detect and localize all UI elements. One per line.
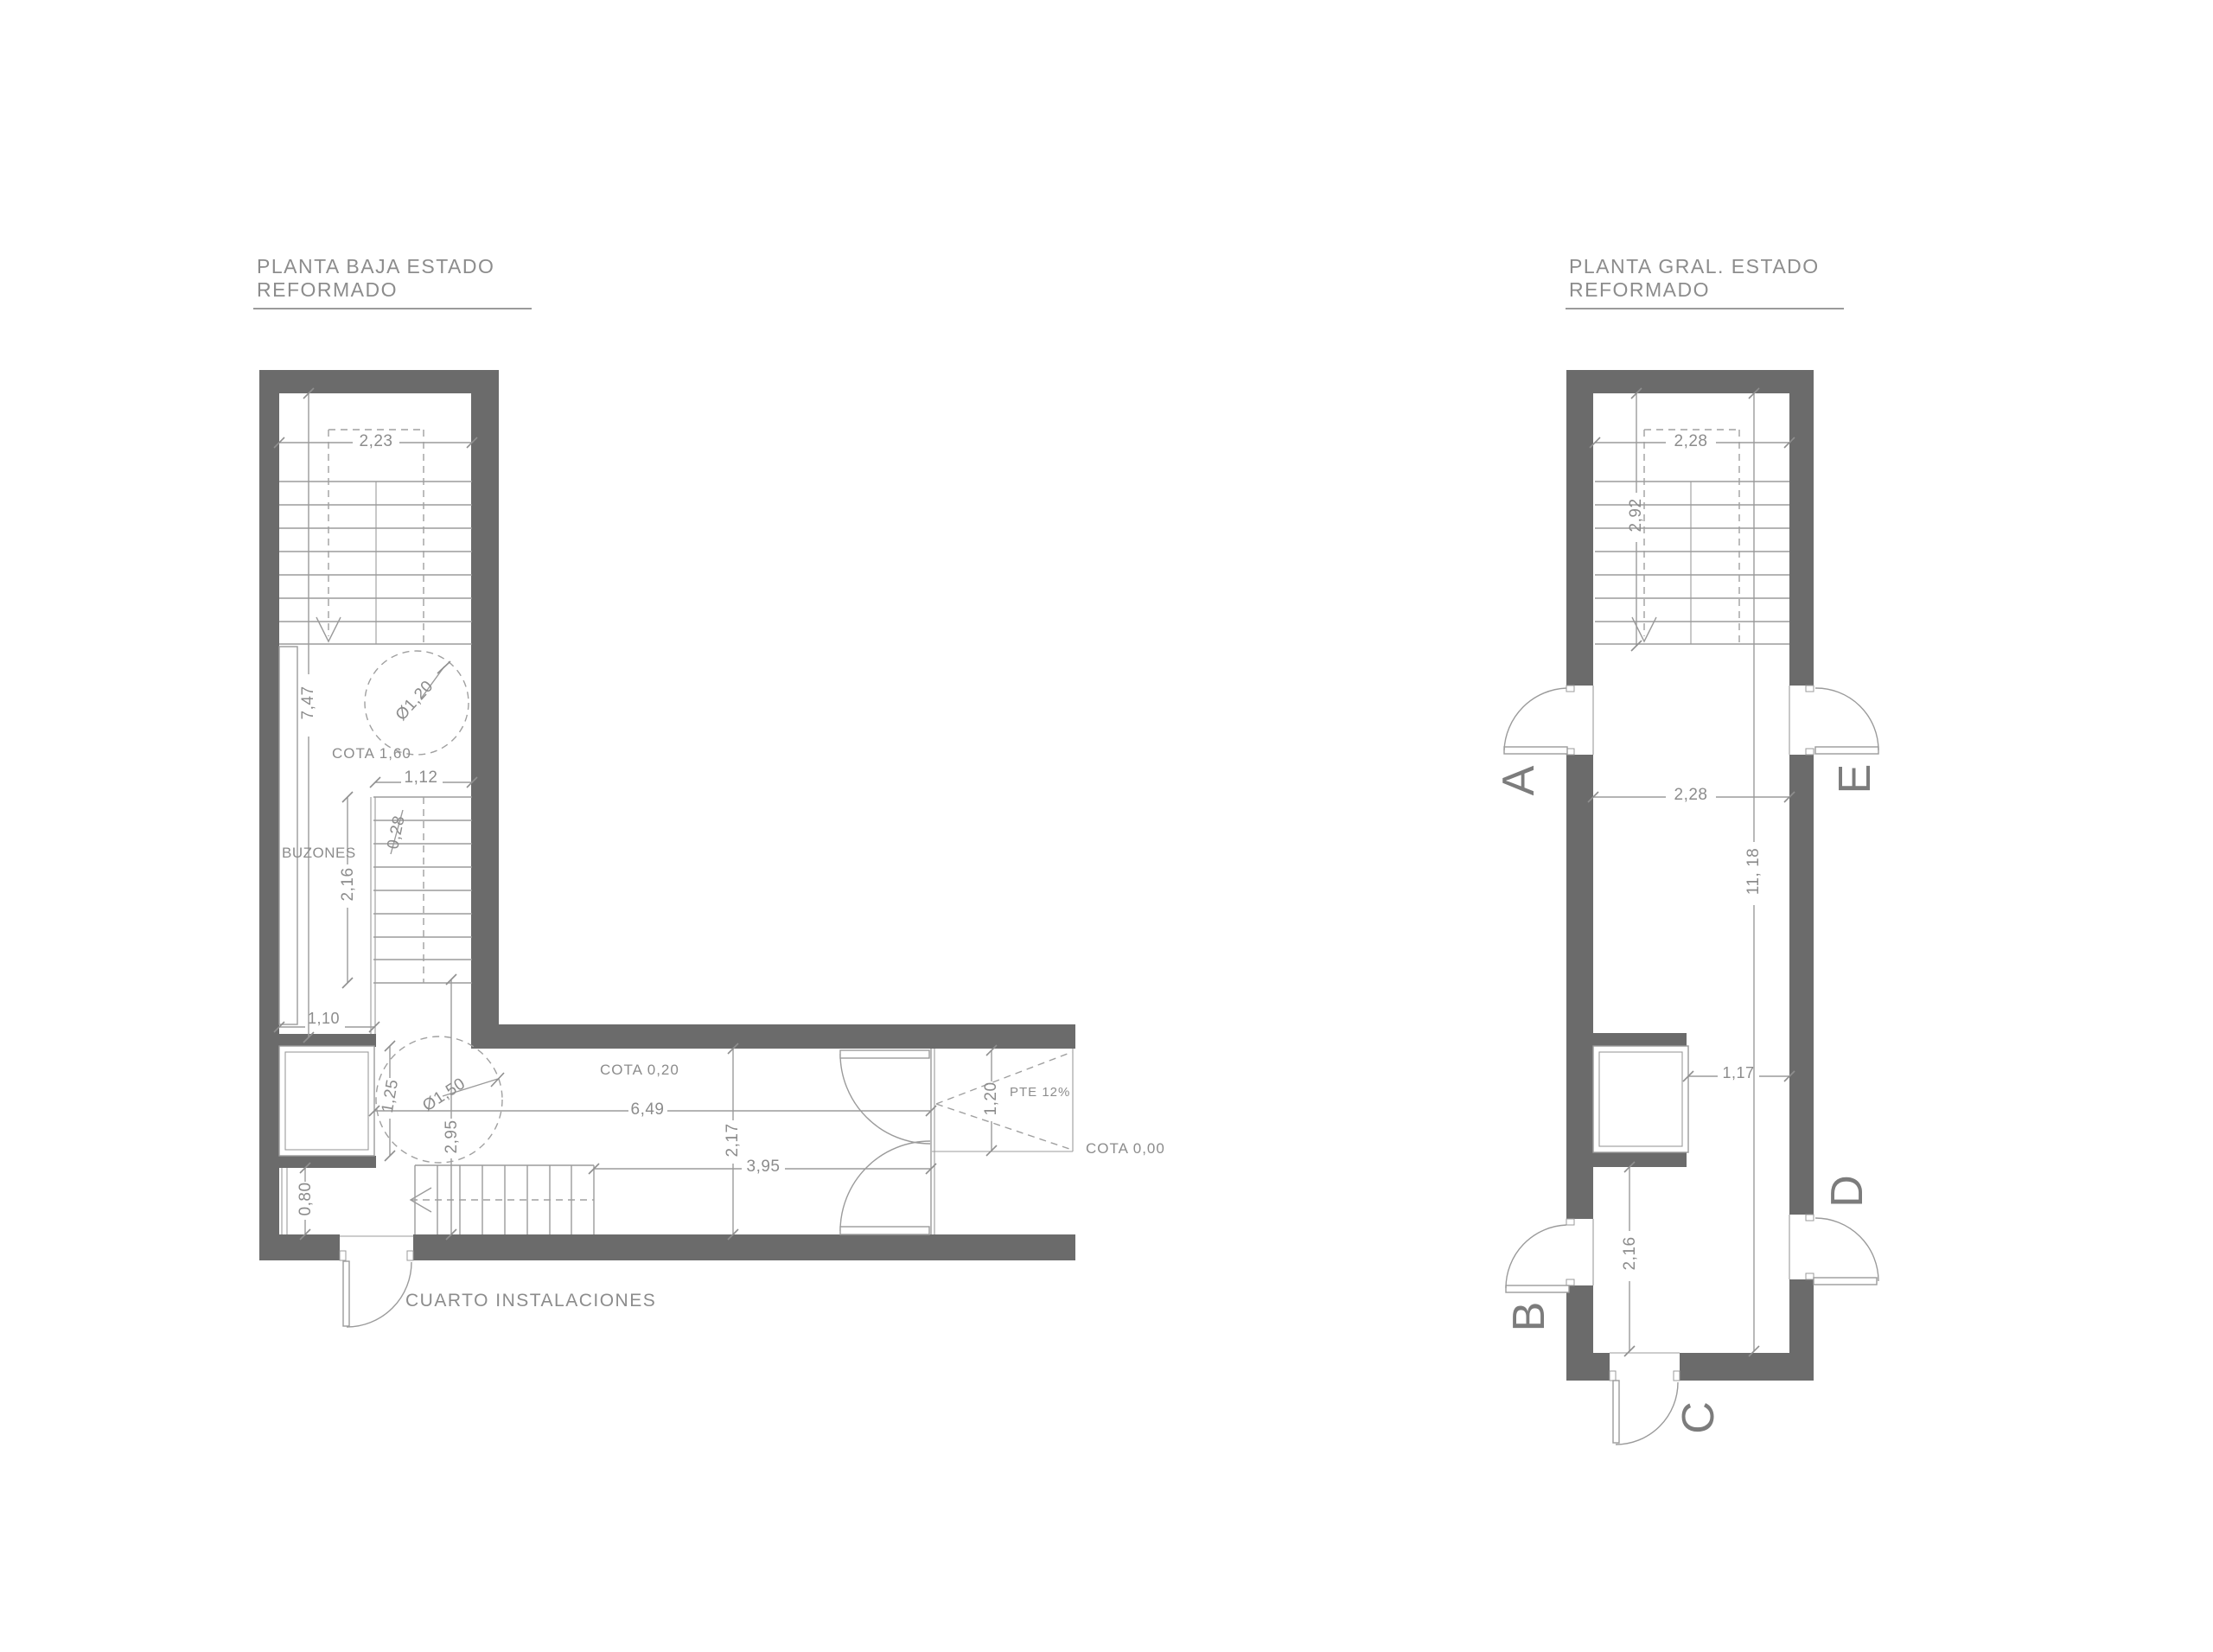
section-label-c: C bbox=[1673, 1392, 1725, 1444]
right-title-line1: PLANTA GRAL. ESTADO bbox=[1569, 255, 1820, 278]
door-d bbox=[1789, 1215, 1878, 1285]
door-b bbox=[1506, 1219, 1593, 1292]
mailboxes bbox=[279, 647, 297, 1024]
wall-right-a bbox=[1789, 370, 1814, 686]
wall-top bbox=[1566, 370, 1814, 393]
wall-shaft-top bbox=[279, 1034, 376, 1047]
door-c bbox=[1610, 1353, 1680, 1445]
dim-2-23: 2,23 bbox=[350, 433, 402, 450]
left-stair-direction bbox=[316, 430, 424, 644]
left-mid-stair bbox=[371, 797, 472, 1034]
door-arc bbox=[1815, 688, 1878, 750]
section-label-d: D bbox=[1821, 1165, 1873, 1217]
cota-1-60: COTA 1,60 bbox=[332, 746, 411, 762]
left-title-line1: PLANTA BAJA ESTADO bbox=[257, 255, 494, 278]
wall-right-upper bbox=[471, 370, 499, 1024]
dim-11-18: 11, 18 bbox=[1745, 839, 1763, 903]
wall-shaft-bottom bbox=[1593, 1152, 1687, 1167]
right-elevator-shaft bbox=[1593, 1046, 1688, 1152]
door-arc bbox=[1616, 1382, 1678, 1445]
door-a bbox=[1504, 686, 1593, 755]
door-leaf bbox=[1613, 1381, 1619, 1443]
door-leaf bbox=[343, 1261, 349, 1326]
dim-1-17: 1,17 bbox=[1716, 1065, 1761, 1081]
door-leaf bbox=[1814, 1278, 1877, 1285]
door-leaf-bottom bbox=[840, 1227, 929, 1234]
dim-1-12: 1,12 bbox=[399, 769, 443, 787]
door-arc bbox=[1815, 1218, 1878, 1281]
left-plan-title: PLANTA BAJA ESTADO REFORMADO bbox=[257, 255, 494, 302]
section-label-e: E bbox=[1829, 753, 1881, 805]
door-arc bbox=[1504, 688, 1566, 750]
cota-0-00: COTA 0,00 bbox=[1086, 1141, 1165, 1157]
door-arc-bottom bbox=[840, 1141, 930, 1231]
dim-2-16-right: 2,16 bbox=[1622, 1228, 1639, 1279]
door-arc bbox=[1506, 1225, 1566, 1288]
right-title-underline bbox=[1566, 308, 1844, 309]
left-room-lines bbox=[282, 1168, 287, 1234]
door-leaf bbox=[1504, 747, 1567, 754]
right-title-line2: REFORMADO bbox=[1569, 278, 1820, 302]
left-title-underline bbox=[253, 308, 532, 309]
door-arc-top bbox=[840, 1054, 930, 1144]
wall-bottom-main bbox=[413, 1234, 1075, 1260]
right-plan-title: PLANTA GRAL. ESTADO REFORMADO bbox=[1569, 255, 1820, 302]
wall-top bbox=[259, 370, 499, 393]
right-plan-walls bbox=[1566, 370, 1814, 1381]
wall-shaft-top bbox=[1593, 1033, 1687, 1046]
right-plan bbox=[1504, 370, 1878, 1445]
door-arc bbox=[347, 1262, 411, 1327]
dim-2-16-left: 2,16 bbox=[340, 858, 357, 910]
dim-2-95: 2,95 bbox=[443, 1111, 461, 1163]
room-name-label: CUARTO INSTALACIONES bbox=[405, 1292, 656, 1311]
ramp-slope-label: PTE 12% bbox=[1010, 1086, 1070, 1100]
wall-wing-top bbox=[471, 1024, 1075, 1049]
dim-0-80: 0,80 bbox=[297, 1173, 315, 1225]
double-door bbox=[840, 1049, 934, 1234]
ramp bbox=[932, 1049, 1073, 1151]
room-door bbox=[340, 1236, 413, 1327]
wall-left-a bbox=[1566, 370, 1593, 686]
wall-left bbox=[259, 370, 279, 1260]
drawing-sheet: PLANTA BAJA ESTADO REFORMADO PLANTA GRAL… bbox=[0, 0, 2213, 1652]
wall-bottom-b bbox=[1680, 1353, 1814, 1381]
left-title-line2: REFORMADO bbox=[257, 278, 494, 302]
door-e bbox=[1789, 686, 1878, 755]
cota-0-20: COTA 0,20 bbox=[600, 1062, 679, 1078]
wall-bottom-a bbox=[1566, 1353, 1610, 1381]
dim-1-20-ramp: 1,20 bbox=[983, 1073, 1000, 1125]
section-label-b: B bbox=[1503, 1291, 1555, 1343]
left-bottom-stair bbox=[411, 1165, 594, 1234]
dim-3-95: 3,95 bbox=[737, 1158, 789, 1176]
dim-2-28-top: 2,28 bbox=[1665, 433, 1717, 450]
left-plan bbox=[259, 370, 1075, 1327]
dim-2-92: 2,92 bbox=[1628, 489, 1645, 541]
section-label-a: A bbox=[1493, 755, 1545, 807]
left-elevator-shaft bbox=[279, 1046, 374, 1156]
wall-shaft-bottom bbox=[279, 1156, 376, 1168]
door-leaf-top bbox=[840, 1050, 929, 1058]
right-stair bbox=[1595, 430, 1789, 644]
dim-7-47: 7,47 bbox=[300, 677, 317, 729]
wall-bottom-left bbox=[259, 1234, 340, 1260]
wall-left-b bbox=[1566, 755, 1593, 1219]
floor-plan-linework bbox=[0, 0, 2213, 1652]
wall-right-b bbox=[1789, 755, 1814, 1215]
dim-1-10: 1,10 bbox=[308, 1011, 340, 1027]
dim-6-49: 6,49 bbox=[622, 1101, 673, 1119]
dim-2-28-mid: 2,28 bbox=[1665, 787, 1717, 804]
